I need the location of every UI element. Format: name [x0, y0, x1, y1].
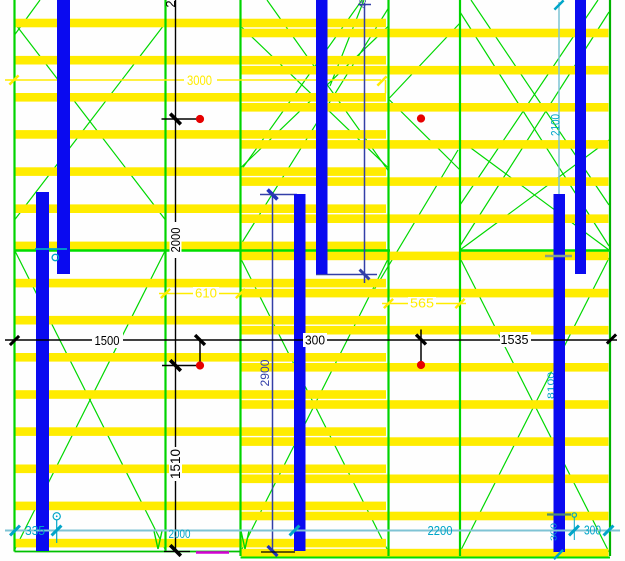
svg-text:300: 300	[549, 523, 559, 541]
svg-text:2000: 2000	[169, 527, 191, 541]
svg-text:565: 565	[410, 297, 434, 311]
svg-text:300: 300	[584, 523, 601, 538]
svg-text:335: 335	[25, 524, 45, 538]
svg-text:2000: 2000	[168, 228, 183, 253]
svg-text:2: 2	[163, 0, 178, 7]
svg-text:1510: 1510	[168, 449, 183, 479]
svg-text:2900: 2900	[260, 360, 272, 387]
svg-text:2100: 2100	[551, 114, 563, 136]
svg-text:1535: 1535	[501, 332, 529, 347]
svg-text:4500: 4500	[358, 0, 369, 9]
svg-text:1500: 1500	[95, 333, 120, 348]
svg-text:610: 610	[195, 287, 217, 301]
svg-text:2200: 2200	[428, 523, 453, 538]
svg-text:3000: 3000	[187, 73, 212, 88]
svg-text:300: 300	[305, 333, 325, 348]
